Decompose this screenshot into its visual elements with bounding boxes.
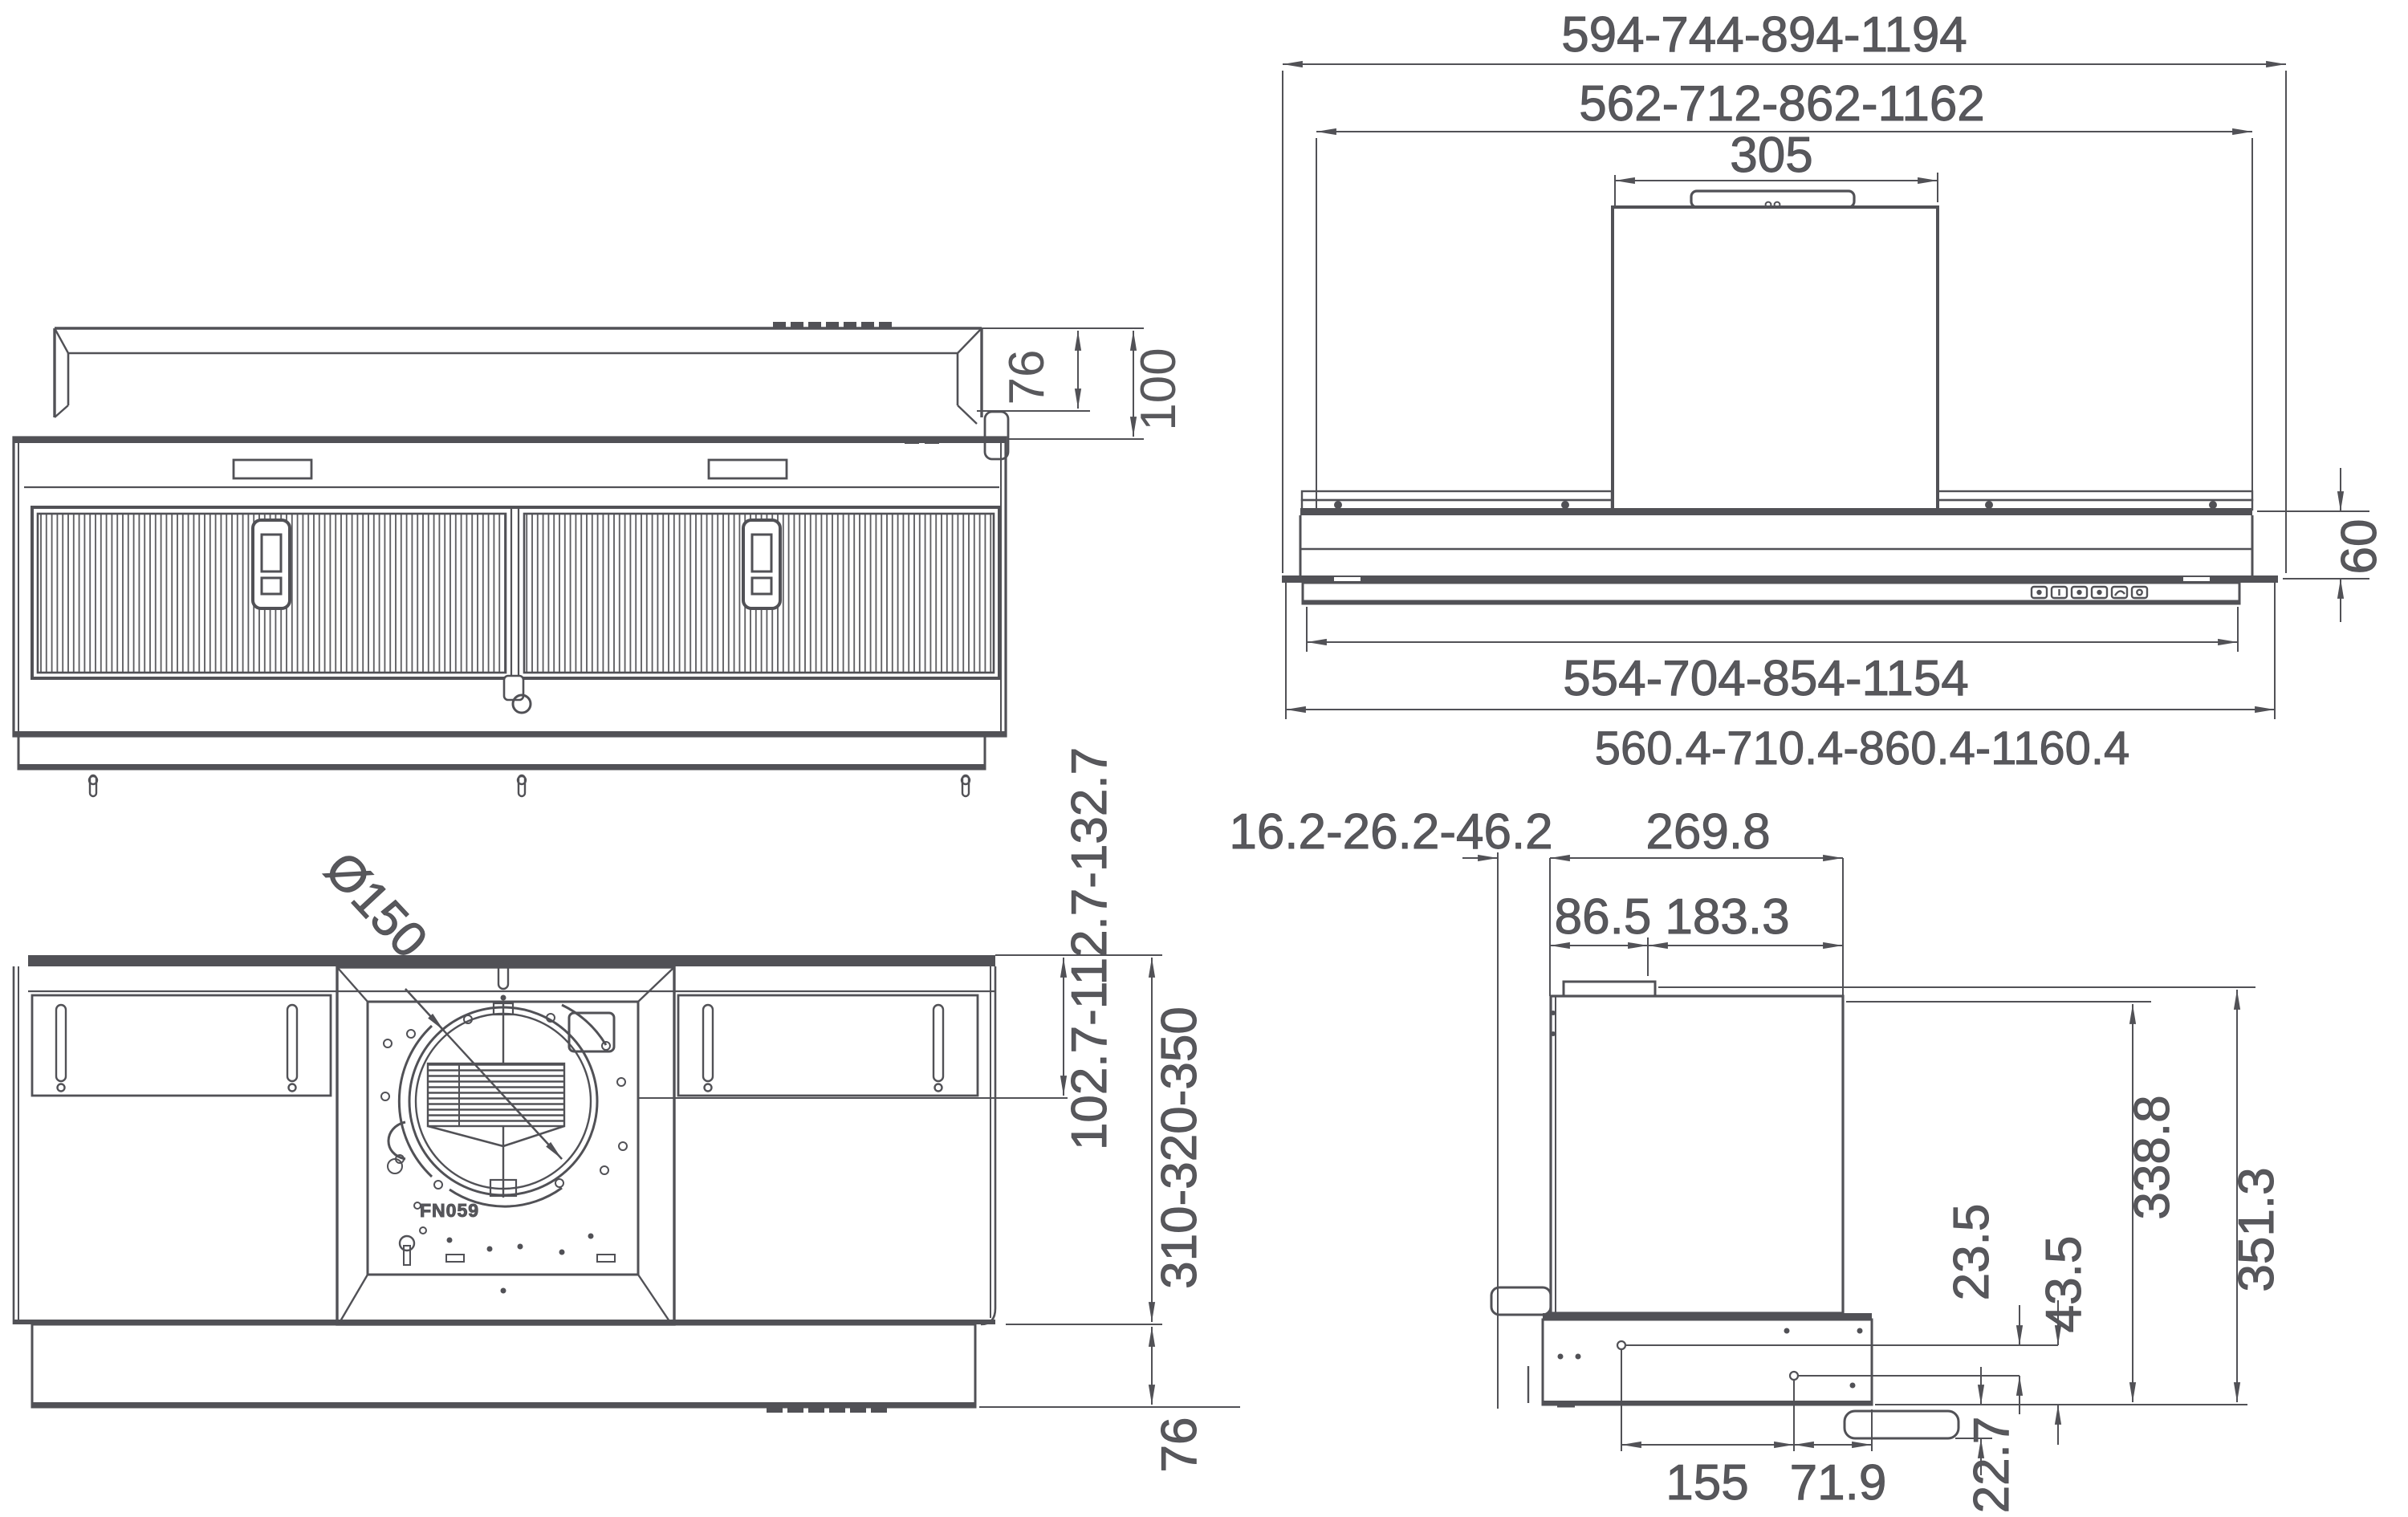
dim-chimney-width: 305 [1730, 128, 1812, 183]
hood-top-view: Ø150 FN059 [14, 747, 1240, 1473]
dim-hole-offset-1: 23.5 [1944, 1204, 1999, 1301]
dim-duct-front: 183.3 [1665, 889, 1789, 945]
dim-wall-clearance: 16.2-26.2-46.2 [1229, 804, 1552, 860]
hood-bottom-view: 76 100 [14, 322, 1186, 796]
drawing-canvas: 76 100 594-744-894-1194 562-712-862-1162… [0, 0, 2408, 1517]
plinth [18, 736, 985, 769]
dim-hole-offset-2: 43.5 [2036, 1236, 2092, 1333]
hole-leaders [1626, 1345, 2247, 1438]
label-motor-model: FN059 [420, 1200, 479, 1221]
technical-drawing-page: { "title": "Range hood dimensional drawi… [0, 0, 2408, 1517]
control-buttons-edge [773, 322, 892, 329]
dim-recess-width: 560.4-710.4-860.4-1160.4 [1595, 722, 2129, 775]
dim-total-depth: 100 [1131, 348, 1186, 430]
dim-depth: 269.8 [1645, 804, 1770, 860]
top-view-plinth [32, 1324, 975, 1413]
rear-panel-right [678, 995, 978, 1096]
hood-front-view: 594-744-894-1194 562-712-862-1162 305 [1282, 7, 2387, 775]
upper-box [55, 328, 982, 424]
dim-duct-rear: 86.5 [1555, 889, 1652, 945]
control-buttons [2032, 587, 2147, 598]
dim-total-height: 351.3 [2229, 1167, 2284, 1291]
dim-plinth-depth: 76 [1152, 1417, 1207, 1473]
blower-wheel [428, 1064, 564, 1146]
hood-side-view: 16.2-26.2-46.2 269.8 86.5 183.3 [1229, 804, 2284, 1513]
filter-latch-right [743, 520, 780, 608]
dim-lip-height: 22.7 [1964, 1417, 2020, 1514]
mounting-hooks [89, 775, 970, 796]
rear-panel-left [32, 995, 331, 1096]
dim-filter-width: 554-704-854-1154 [1563, 651, 1969, 706]
label-duct-diameter: Ø150 [314, 842, 437, 969]
dim-hole-to-front: 71.9 [1790, 1455, 1887, 1511]
filter-latch-left [253, 520, 290, 608]
chimney [1613, 191, 1938, 511]
grille-filters [32, 507, 999, 700]
body-band [1282, 508, 2278, 583]
dim-body-width: 562-712-862-1162 [1579, 76, 1985, 132]
dim-hole-spacing: 155 [1666, 1455, 1748, 1511]
top-view-outline [14, 955, 995, 1324]
dim-duct-offset: 102.7-112.7-132.7 [1062, 747, 1117, 1150]
dim-upper-depth: 76 [999, 350, 1055, 405]
dim-body-depth: 310-320-350 [1152, 1007, 1207, 1289]
side-body [1491, 982, 1843, 1406]
dim-body-height: 60 [2332, 519, 2387, 575]
dim-overall-width: 594-744-894-1194 [1561, 7, 1967, 63]
dim-body-height-side: 338.8 [2125, 1095, 2180, 1219]
